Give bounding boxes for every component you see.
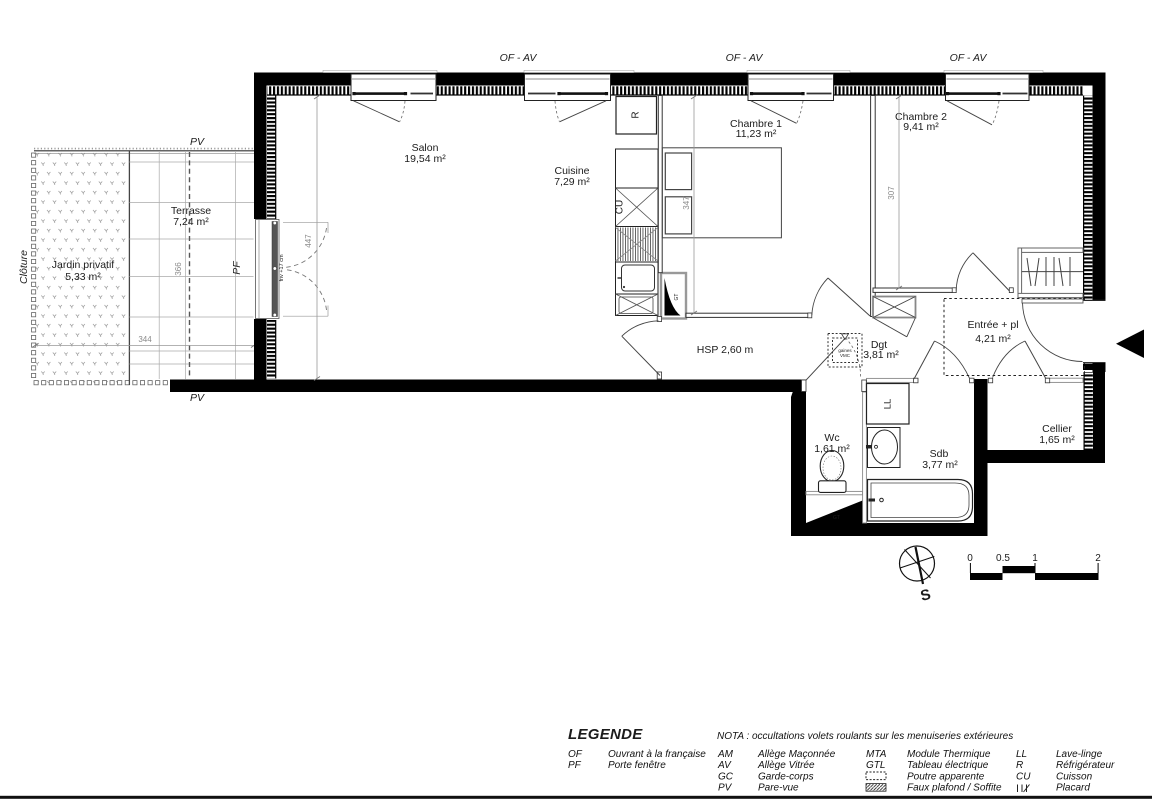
svg-text:NOTA : occultations volets rou: NOTA : occultations volets roulants sur … <box>717 731 1013 742</box>
svg-text:9,41 m²: 9,41 m² <box>903 121 939 133</box>
svg-text:Lave-linge: Lave-linge <box>1056 749 1103 760</box>
svg-text:0.5: 0.5 <box>996 553 1010 564</box>
svg-text:Jardin privatif: Jardin privatif <box>52 259 115 271</box>
svg-text:0: 0 <box>967 553 973 564</box>
svg-text:LEGENDE: LEGENDE <box>568 726 643 743</box>
svg-text:GT: GT <box>674 294 680 301</box>
svg-text:447: 447 <box>304 234 313 248</box>
svg-text:AV: AV <box>717 760 732 771</box>
svg-text:fnv +17 cm: fnv +17 cm <box>279 254 285 281</box>
svg-text:GC: GC <box>718 772 734 783</box>
svg-text:Cuisson: Cuisson <box>1056 772 1093 783</box>
svg-text:366: 366 <box>174 262 183 276</box>
svg-text:CU: CU <box>1016 772 1031 783</box>
svg-text:HSP 2,60 m: HSP 2,60 m <box>697 344 754 356</box>
svg-text:Allège Vitrée: Allège Vitrée <box>757 760 815 771</box>
svg-text:1,61 m²: 1,61 m² <box>814 443 850 455</box>
svg-text:7,29 m²: 7,29 m² <box>554 176 590 188</box>
svg-text:1,65 m²: 1,65 m² <box>1039 434 1075 446</box>
svg-text:PV: PV <box>190 392 205 404</box>
svg-text:PV: PV <box>718 783 733 794</box>
svg-text:Garde-corps: Garde-corps <box>758 772 814 783</box>
svg-text:OF - AV: OF - AV <box>500 52 538 64</box>
svg-text:Ouvrant à la française: Ouvrant à la française <box>608 749 706 760</box>
svg-text:2: 2 <box>1095 553 1101 564</box>
svg-text:Tableau électrique: Tableau électrique <box>907 760 989 771</box>
svg-text:OF - AV: OF - AV <box>726 52 764 64</box>
svg-text:5,33 m²: 5,33 m² <box>65 271 101 283</box>
svg-text:19,54 m²: 19,54 m² <box>404 153 446 165</box>
svg-text:GTL: GTL <box>866 760 885 771</box>
svg-text:PF: PF <box>231 261 243 275</box>
svg-text:3,81 m²: 3,81 m² <box>863 349 899 361</box>
svg-text:MTA: MTA <box>866 749 887 760</box>
svg-text:OF - AV: OF - AV <box>950 52 988 64</box>
svg-text:11,23 m²: 11,23 m² <box>736 128 777 140</box>
svg-text:Porte fenêtre: Porte fenêtre <box>608 760 666 771</box>
svg-text:PF: PF <box>568 760 582 771</box>
svg-text:Placard: Placard <box>1056 783 1090 794</box>
svg-text:Poutre apparente: Poutre apparente <box>907 772 985 783</box>
svg-text:Entrée + pl: Entrée + pl <box>967 319 1018 331</box>
svg-text:R: R <box>631 111 642 118</box>
svg-text:Clôture: Clôture <box>18 250 30 284</box>
svg-text:Allège Maçonnée: Allège Maçonnée <box>757 749 836 760</box>
svg-text:Module Thermique: Module Thermique <box>907 749 991 760</box>
svg-text:1: 1 <box>1032 553 1038 564</box>
svg-text:7,24 m²: 7,24 m² <box>173 216 209 228</box>
svg-text:Faux plafond / Soffite: Faux plafond / Soffite <box>907 783 1002 794</box>
svg-text:Pare-vue: Pare-vue <box>758 783 799 794</box>
svg-text:PV: PV <box>190 136 205 148</box>
svg-text:307: 307 <box>887 186 896 200</box>
svg-text:VMC: VMC <box>840 353 851 358</box>
svg-text:AM: AM <box>717 749 734 760</box>
svg-text:3,77 m²: 3,77 m² <box>922 459 958 471</box>
svg-text:CU: CU <box>615 200 626 214</box>
svg-text:OF: OF <box>568 749 583 760</box>
svg-text:LL: LL <box>883 399 894 410</box>
svg-text:347: 347 <box>682 196 691 210</box>
svg-text:4,21 m²: 4,21 m² <box>975 333 1011 345</box>
svg-text:Réfrigérateur: Réfrigérateur <box>1056 760 1115 771</box>
svg-text:GT: GT <box>833 515 840 521</box>
svg-text:LL: LL <box>1016 749 1027 760</box>
svg-text:344: 344 <box>138 335 152 344</box>
svg-text:R: R <box>1016 760 1023 771</box>
